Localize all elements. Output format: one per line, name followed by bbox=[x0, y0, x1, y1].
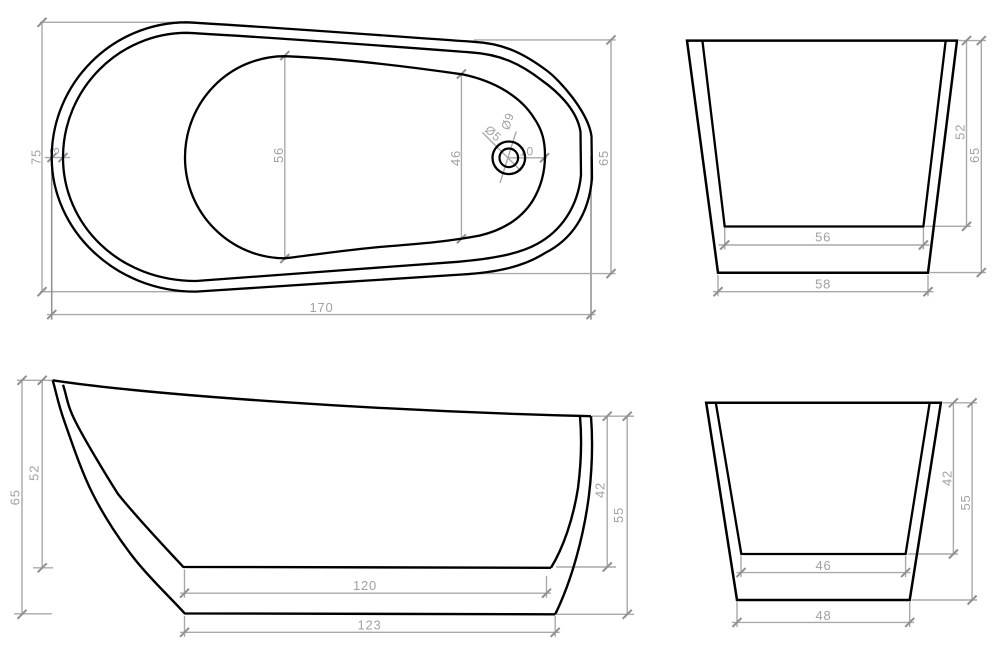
svg-text:75: 75 bbox=[28, 149, 43, 165]
svg-text:65: 65 bbox=[967, 147, 982, 163]
svg-text:42: 42 bbox=[593, 482, 608, 498]
svg-text:46: 46 bbox=[448, 150, 463, 166]
svg-text:3: 3 bbox=[47, 146, 62, 154]
svg-text:48: 48 bbox=[815, 608, 831, 623]
svg-text:170: 170 bbox=[309, 300, 333, 315]
svg-text:65: 65 bbox=[7, 489, 22, 505]
svg-text:52: 52 bbox=[27, 465, 42, 481]
svg-text:46: 46 bbox=[815, 558, 831, 573]
svg-text:56: 56 bbox=[815, 230, 831, 245]
svg-text:55: 55 bbox=[958, 494, 973, 510]
svg-text:52: 52 bbox=[952, 124, 967, 140]
svg-text:56: 56 bbox=[271, 147, 286, 163]
svg-text:123: 123 bbox=[357, 617, 381, 632]
svg-text:65: 65 bbox=[596, 150, 611, 166]
svg-text:58: 58 bbox=[815, 276, 831, 291]
svg-text:55: 55 bbox=[611, 507, 626, 523]
svg-text:42: 42 bbox=[939, 470, 954, 486]
svg-text:120: 120 bbox=[353, 578, 377, 593]
